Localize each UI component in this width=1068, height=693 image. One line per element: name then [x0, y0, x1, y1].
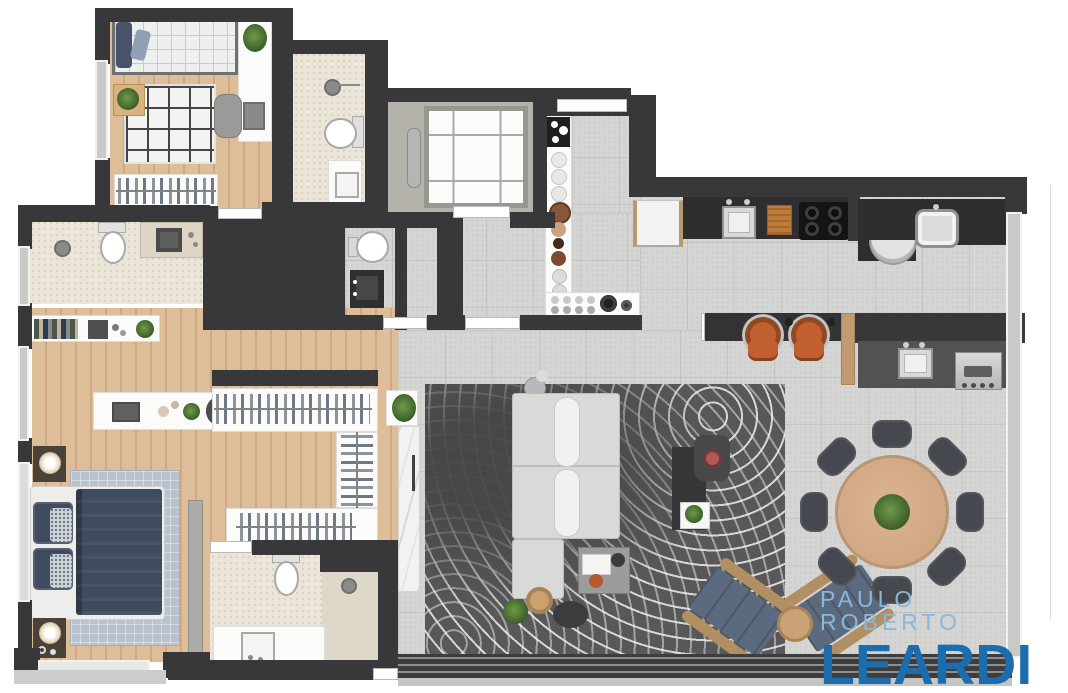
books-icon — [34, 319, 78, 339]
decor-dot — [551, 121, 558, 128]
elevator-rail — [407, 128, 421, 188]
plate-icon — [551, 152, 567, 168]
cup-icon — [575, 306, 583, 314]
decor-dot — [158, 406, 169, 417]
bowl-icon — [551, 251, 566, 266]
cup-icon — [587, 306, 595, 314]
dining-chair — [956, 492, 984, 532]
dining-chair — [872, 420, 912, 448]
wall — [95, 8, 285, 22]
turntable-disc — [703, 449, 722, 468]
pot-icon — [589, 574, 603, 588]
plant-icon — [503, 599, 528, 624]
cup-icon — [611, 553, 625, 567]
closet-rail — [214, 408, 372, 410]
knob — [353, 292, 357, 296]
cup-icon — [575, 296, 583, 304]
window — [18, 462, 30, 602]
exterior-ledge — [14, 670, 166, 684]
floor-lamp-icon — [536, 370, 548, 382]
plant-icon — [136, 320, 154, 338]
faucet-icon — [919, 342, 925, 348]
wall — [272, 8, 293, 208]
faucet-icon — [933, 204, 939, 210]
fridge-icon — [633, 200, 683, 247]
sofa-back-cushion — [554, 397, 580, 467]
wood-tray — [526, 587, 553, 614]
stove-burner — [805, 222, 819, 236]
wall — [437, 215, 463, 330]
wall — [18, 303, 32, 349]
plant-icon — [117, 88, 139, 110]
faucet-icon — [726, 199, 732, 205]
bbq-sink-icon — [898, 348, 933, 379]
corner-sill — [373, 668, 398, 680]
wall — [18, 600, 32, 652]
decor-dot — [559, 126, 568, 135]
window — [18, 246, 30, 306]
shower-head-icon — [324, 79, 341, 96]
wall-service-shaft — [203, 215, 345, 330]
toilet-icon — [100, 231, 126, 264]
stove-burner — [805, 206, 819, 220]
wall — [365, 40, 388, 215]
toilet-icon — [274, 561, 299, 596]
kitchen-sink-icon — [722, 206, 756, 239]
floor-plan-image: PAULO ROBERTO LEARDI — [0, 0, 1068, 693]
cup-icon — [785, 318, 793, 326]
wall — [427, 315, 465, 330]
plant-icon — [392, 394, 416, 422]
knob — [353, 280, 357, 284]
cup-icon — [587, 296, 595, 304]
wall — [18, 205, 210, 222]
closet-rail — [116, 190, 216, 192]
cup-icon — [563, 296, 571, 304]
door-opening — [383, 317, 427, 329]
bed-pillow — [50, 554, 72, 588]
wood-panel — [841, 313, 855, 385]
watermark: PAULO ROBERTO LEARDI — [820, 588, 1056, 693]
elevator-icon — [424, 106, 528, 208]
pot-icon — [600, 295, 617, 312]
dining-chair — [800, 492, 828, 532]
cup-icon — [551, 296, 559, 304]
wall — [168, 660, 398, 680]
wall — [629, 95, 656, 187]
window — [95, 60, 108, 160]
decor-dot — [50, 649, 56, 655]
cup-icon — [827, 318, 835, 326]
grill-knob — [989, 383, 994, 388]
wall — [18, 205, 32, 249]
wall — [375, 88, 545, 102]
bed-pillow — [116, 22, 132, 68]
wall — [378, 540, 398, 680]
watermark-name: PAULO ROBERTO — [820, 588, 1056, 634]
wall — [212, 370, 378, 386]
door-frame — [701, 313, 705, 341]
grill-knob — [980, 383, 985, 388]
toilet-icon — [356, 231, 389, 263]
round-side-table — [777, 606, 813, 642]
cutting-board-icon — [767, 205, 792, 235]
faucet-icon — [903, 342, 909, 348]
cup-icon — [551, 306, 559, 314]
wall — [395, 215, 407, 330]
marble-cabinet — [398, 426, 420, 592]
wc-cabinet-door — [356, 276, 378, 300]
stove-burner — [828, 206, 842, 220]
decor-dot — [552, 136, 559, 143]
closet-rail — [356, 432, 358, 508]
lamp-icon — [39, 622, 61, 644]
cabinet-handle — [412, 455, 415, 491]
laptop-icon — [112, 402, 140, 422]
plate-icon — [551, 169, 567, 185]
pot-icon — [621, 300, 632, 311]
door-opening — [465, 317, 520, 329]
plate-icon — [551, 186, 567, 202]
wall — [95, 158, 110, 210]
plant-centerpiece-icon — [874, 494, 910, 530]
wall — [95, 8, 110, 64]
elevator-door-opening — [453, 206, 510, 218]
window — [18, 346, 29, 441]
tray — [582, 554, 611, 575]
wall — [855, 313, 1025, 343]
wall — [330, 315, 383, 330]
cup-icon — [563, 306, 571, 314]
decor-dot — [112, 324, 119, 331]
bowl-icon — [553, 238, 564, 249]
side-table — [553, 601, 588, 628]
faucet-icon — [744, 199, 750, 205]
plant-icon — [183, 403, 200, 420]
plant-icon — [243, 24, 267, 52]
closet-rail — [236, 526, 356, 528]
decor-dot — [120, 330, 126, 336]
laundry-sink-icon — [915, 209, 959, 248]
shower-arm — [336, 84, 360, 86]
bar-stool — [745, 317, 781, 353]
grill-knob — [971, 383, 976, 388]
laptop-icon — [243, 102, 265, 130]
wall — [1005, 177, 1027, 214]
entry-door-opening — [557, 99, 627, 112]
grill-knob — [962, 383, 967, 388]
sink-icon — [156, 228, 182, 252]
plant-icon — [685, 505, 703, 523]
wall — [629, 177, 1013, 197]
wall — [18, 438, 32, 464]
plate-icon — [552, 269, 567, 284]
desk-chair — [214, 94, 242, 138]
toilet-icon — [324, 118, 357, 149]
bed-duvet — [76, 489, 162, 615]
lamp-icon — [39, 452, 61, 474]
watermark-brand: LEARDI — [820, 637, 1056, 693]
decor-box — [88, 320, 108, 339]
bbq-grill-slot — [964, 366, 992, 377]
stove-burner — [828, 222, 842, 236]
wall — [510, 212, 555, 228]
sliding-door — [188, 500, 203, 658]
sink-icon — [335, 172, 359, 198]
sofa-back-cushion — [554, 469, 580, 537]
wall — [520, 315, 642, 330]
faucet-icon — [188, 232, 194, 238]
door-opening — [210, 541, 252, 553]
door-opening — [218, 208, 262, 219]
decor-dot — [171, 401, 179, 409]
bar-stool — [791, 317, 827, 353]
page-border-line — [1050, 185, 1051, 620]
faucet-icon — [193, 242, 198, 247]
shower-head-icon — [54, 240, 71, 257]
bed-pillow — [50, 508, 72, 542]
shower-head-icon — [341, 578, 357, 594]
